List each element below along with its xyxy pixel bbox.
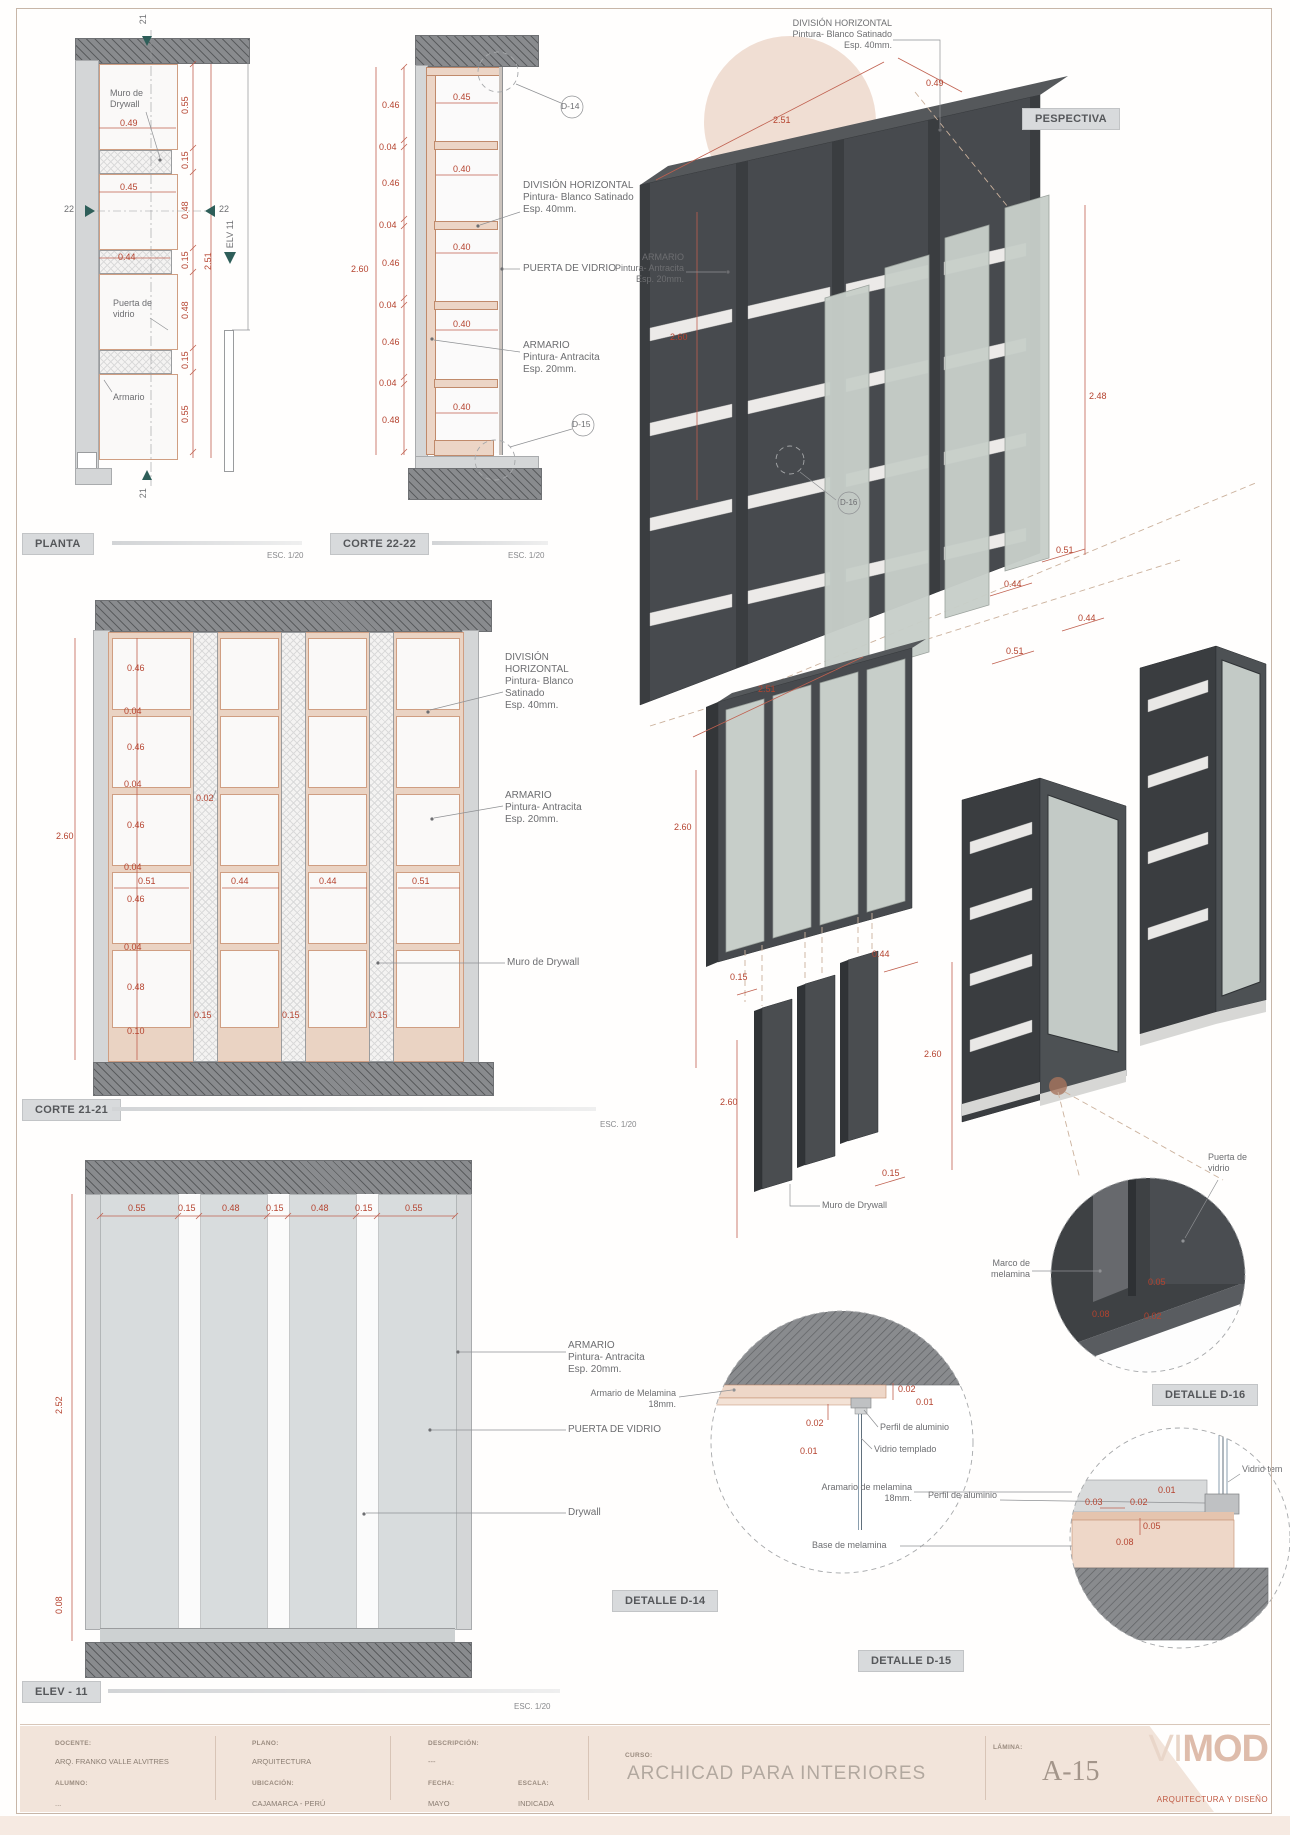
badge-corte21: CORTE 21-21 — [22, 1099, 121, 1121]
d16-dim: 0.02 — [1144, 1311, 1162, 1321]
planta-marker-22-left: 22 — [64, 204, 74, 214]
d14-dim: 0.02 — [898, 1384, 916, 1394]
tb-curso-value: ARCHICAD PARA INTERIORES — [627, 1763, 926, 1785]
c21-label-division-l1: DIVISIÓN — [505, 652, 549, 664]
c21-dim-total: 2.60 — [56, 831, 74, 841]
persp-dim-d: 0.49 — [926, 78, 944, 88]
c22-dim: 0.04 — [379, 300, 397, 310]
planta-marker-21-bottom: 21 — [138, 478, 148, 508]
logo-tagline: ARQUITECTURA Y DISEÑO — [1125, 1795, 1268, 1804]
logo-vi: VI — [1148, 1728, 1182, 1770]
c22-dim-inner: 0.40 — [453, 402, 471, 412]
tb-fecha-label: FECHA: — [428, 1780, 454, 1787]
c22-label-puerta: PUERTA DE VIDRIO — [523, 263, 616, 275]
c22-callout-d15: D-15 — [572, 420, 590, 430]
axon-dim-ph2: 2.60 — [720, 1097, 738, 1107]
scale-note: ESC. 1/20 — [514, 1702, 550, 1711]
persp-dim-door: 0.51 — [1056, 545, 1074, 555]
scale-note: ESC. 1/20 — [267, 551, 303, 560]
persp-dim-hd: 2.48 — [1089, 391, 1107, 401]
persp-dim-door: 0.44 — [1078, 613, 1096, 623]
planta-dim-v: 0.15 — [180, 145, 190, 175]
elev-dim: 0.55 — [128, 1203, 146, 1213]
scale-note: ESC. 1/20 — [600, 1120, 636, 1129]
d16-label-marco-l2: melamina — [972, 1269, 1030, 1279]
badge-line — [108, 1689, 560, 1693]
c22-dim-inner: 0.45 — [453, 92, 471, 102]
tb-plano-value: ARQUITECTURA — [252, 1757, 311, 1766]
d16-dim: 0.08 — [1092, 1309, 1110, 1319]
c22-label-armario-l1: ARMARIO — [523, 340, 570, 352]
tb-docente-value: ARQ. FRANKO VALLE ALVITRES — [55, 1757, 169, 1766]
persp-label-armario-l3: Esp. 20mm. — [608, 274, 684, 284]
c21-label-muro: Muro de Drywall — [507, 957, 579, 969]
c22-dim-inner: 0.40 — [453, 242, 471, 252]
tb-descripcion-label: DESCRIPCIÓN: — [428, 1740, 479, 1747]
elev-dim: 0.55 — [405, 1203, 423, 1213]
c21-dim: 0.46 — [127, 894, 145, 904]
elev-dim: 0.15 — [355, 1203, 373, 1213]
c21-dim-gap: 0.02 — [196, 793, 214, 803]
axon-cabinet-open-2 — [1140, 646, 1266, 1046]
detail-d16 — [1032, 1178, 1246, 1373]
d16-label-puerta-l1: Puerta de — [1208, 1152, 1247, 1162]
planta-dim-v: 0.15 — [180, 245, 190, 275]
planta-dim-v: 0.15 — [180, 345, 190, 375]
persp-label-armario-l2: Pintura- Antracita — [608, 263, 684, 273]
badge-pespectiva: PESPECTIVA — [1022, 108, 1120, 130]
axon-cabinet-open — [962, 778, 1126, 1122]
elev-dim-h: 2.52 — [54, 1390, 64, 1420]
axon-label-muro: Muro de Drywall — [822, 1200, 887, 1210]
planta-label-puerta-l2: vidrio — [113, 309, 135, 319]
persp-dim-w: 2.51 — [773, 115, 791, 125]
planta-label-puerta-l1: Puerta de — [113, 298, 152, 308]
d14-label-armario-l2: 18mm. — [576, 1399, 676, 1409]
elev-dim: 0.15 — [266, 1203, 284, 1213]
persp-dim-door: 0.44 — [1004, 579, 1022, 589]
tb-alumno-label: ALUMNO: — [55, 1780, 88, 1787]
axon-dim-pt2: 0.15 — [882, 1168, 900, 1178]
planta-label-muro-l1: Muro de — [110, 88, 143, 98]
d15-dim: 0.03 — [1085, 1497, 1103, 1507]
persp-label-division-l2: Pintura- Blanco Satinado — [768, 29, 892, 39]
persp-label-armario-l1: ARMARIO — [608, 252, 684, 262]
badge-detalle-d14: DETALLE D-14 — [612, 1590, 718, 1612]
c22-label-division-l3: Esp. 40mm. — [523, 204, 576, 216]
d15-dim: 0.08 — [1116, 1537, 1134, 1547]
elev-label-armario-l2: Pintura- Antracita — [568, 1352, 645, 1364]
c21-label-division-l2: HORIZONTAL — [505, 664, 569, 676]
c21-dim: 0.04 — [124, 779, 142, 789]
persp-callout-d16: D-16 — [840, 498, 857, 507]
corte21-linework — [75, 638, 505, 1060]
elev-label-armario-l3: Esp. 20mm. — [568, 1364, 621, 1376]
tb-ubicacion-value: CAJAMARCA - PERÚ — [252, 1799, 325, 1808]
planta-label-muro-l2: Drywall — [110, 99, 140, 109]
tb-curso-label: CURSO: — [625, 1752, 652, 1759]
c21-dim-b: 0.15 — [370, 1010, 388, 1020]
c22-dim-inner: 0.40 — [453, 319, 471, 329]
d14-dim: 0.01 — [916, 1397, 934, 1407]
drawing-sheet: Muro de Drywall 0.49 0.45 0.44 Puerta de… — [0, 0, 1290, 1835]
c21-dim: 0.48 — [127, 982, 145, 992]
badge-planta: PLANTA — [22, 533, 94, 555]
planta-dim: 0.44 — [118, 252, 136, 262]
planta-marker-21-top: 21 — [138, 4, 148, 34]
sheet-bottom-band — [0, 1816, 1290, 1835]
planta-dim-total: 2.51 — [203, 246, 213, 276]
d16-label-puerta-l2: vidrio — [1208, 1163, 1230, 1173]
c22-dim: 0.04 — [379, 378, 397, 388]
c22-label-division-l1: DIVISIÓN HORIZONTAL — [523, 180, 633, 192]
d14-dim: 0.02 — [806, 1418, 824, 1428]
c21-dim-row: 0.44 — [231, 876, 249, 886]
planta-dim-v: 0.55 — [180, 90, 190, 120]
c22-dim: 0.46 — [382, 258, 400, 268]
c21-label-armario-l1: ARMARIO — [505, 790, 552, 802]
axon-views — [693, 639, 1266, 1238]
d14-label-armario-l1: Armario de Melamina — [576, 1388, 676, 1398]
d15-dim: 0.02 — [1130, 1497, 1148, 1507]
d15-label-vidrio: Vidrio tem — [1242, 1464, 1282, 1474]
d14-dim: 0.01 — [800, 1446, 818, 1456]
scale-note: ESC. 1/20 — [508, 551, 544, 560]
logo-mod: MOD — [1182, 1728, 1268, 1770]
c22-label-division-l2: Pintura- Blanco Satinado — [523, 192, 634, 204]
persp-label-division-l1: DIVISIÓN HORIZONTAL — [768, 18, 892, 28]
badge-line — [112, 541, 302, 545]
planta-marker-22-right: 22 — [219, 204, 229, 214]
perspective-view — [640, 36, 1258, 726]
vimod-logo: VIMOD — [1125, 1730, 1268, 1768]
c21-dim: 0.04 — [124, 942, 142, 952]
c22-dim: 0.46 — [382, 178, 400, 188]
c21-label-armario-l3: Esp. 20mm. — [505, 814, 558, 826]
tb-docente-label: DOCENTE: — [55, 1740, 91, 1747]
badge-detalle-d15: DETALLE D-15 — [858, 1650, 964, 1672]
c21-label-division-l5: Esp. 40mm. — [505, 700, 558, 712]
c21-dim-row: 0.51 — [138, 876, 156, 886]
tb-escala-value: INDICADA — [518, 1799, 554, 1808]
tb-descripcion-value: --- — [428, 1757, 436, 1766]
planta-dim: 0.45 — [120, 182, 138, 192]
c21-dim: 0.04 — [124, 706, 142, 716]
c22-dim: 0.46 — [382, 337, 400, 347]
c21-dim: 0.46 — [127, 663, 145, 673]
persp-dim-door: 0.51 — [1006, 646, 1024, 656]
badge-detalle-d16: DETALLE D-16 — [1152, 1384, 1258, 1406]
d14-label-vidrio: Vidrio templado — [874, 1444, 936, 1454]
c21-label-division-l3: Pintura- Blanco — [505, 676, 573, 688]
elev-label-drywall: Drywall — [568, 1507, 601, 1519]
c22-label-armario-l3: Esp. 20mm. — [523, 364, 576, 376]
detail-d14 — [679, 1311, 973, 1573]
axon-dim-h: 2.60 — [674, 822, 692, 832]
elev-dim: 0.48 — [311, 1203, 329, 1213]
c22-label-armario-l2: Pintura- Antracita — [523, 352, 600, 364]
elev-label-puerta: PUERTA DE VIDRIO — [568, 1424, 661, 1436]
planta-marker-elv11: ELV 11 — [225, 216, 235, 252]
d15-label-armario-l1: Aramario de melamina — [790, 1482, 912, 1492]
tb-ubicacion-label: UBICACIÓN: — [252, 1780, 294, 1787]
c22-dim: 0.04 — [379, 142, 397, 152]
persp-label-division-l3: Esp. 40mm. — [768, 40, 892, 50]
planta-dim-v: 0.55 — [180, 399, 190, 429]
badge-corte22: CORTE 22-22 — [330, 533, 429, 555]
c22-dim-inner: 0.40 — [453, 164, 471, 174]
c21-dim-row: 0.51 — [412, 876, 430, 886]
tb-escala-label: ESCALA: — [518, 1780, 549, 1787]
planta-dim-v: 0.48 — [180, 295, 190, 325]
tb-fecha-value: MAYO — [428, 1799, 450, 1808]
elev-dim: 0.48 — [222, 1203, 240, 1213]
c21-dim-row: 0.44 — [319, 876, 337, 886]
c22-dim: 0.46 — [382, 100, 400, 110]
axon-dim-ph: 2.60 — [924, 1049, 942, 1059]
c22-callout-d14: D-14 — [561, 102, 579, 112]
axon-dim-pw: 0.44 — [872, 949, 890, 959]
c22-dim: 0.48 — [382, 415, 400, 425]
c21-dim-b: 0.15 — [194, 1010, 212, 1020]
elev-dim: 0.15 — [178, 1203, 196, 1213]
c22-dim: 0.04 — [379, 220, 397, 230]
d16-label-marco-l1: Marco de — [972, 1258, 1030, 1268]
c21-dim: 0.10 — [127, 1026, 145, 1036]
c22-dim-total: 2.60 — [351, 264, 369, 274]
d15-dim: 0.01 — [1158, 1485, 1176, 1495]
persp-dim-h: 2.60 — [670, 332, 688, 342]
tb-lamina-label: LÁMINA: — [993, 1744, 1023, 1751]
axon-dim-w: 2.51 — [758, 684, 776, 694]
badge-line — [432, 541, 548, 545]
d15-label-perfil: Perfil de aluminio — [928, 1490, 997, 1500]
c21-dim: 0.46 — [127, 742, 145, 752]
tb-plano-label: PLANO: — [252, 1740, 279, 1747]
badge-elev11: ELEV - 11 — [22, 1681, 101, 1703]
planta-dim: 0.49 — [120, 118, 138, 128]
c21-label-armario-l2: Pintura- Antracita — [505, 802, 582, 814]
d16-dim: 0.05 — [1148, 1277, 1166, 1287]
planta-label-armario: Armario — [113, 392, 145, 402]
d15-label-base: Base de melamina — [812, 1540, 887, 1550]
drywall-pillars — [754, 951, 878, 1192]
d15-label-armario-l2: 18mm. — [790, 1493, 912, 1503]
c21-dim: 0.46 — [127, 820, 145, 830]
c21-label-division-l4: Satinado — [505, 688, 544, 700]
d15-dim: 0.05 — [1143, 1521, 1161, 1531]
d14-label-perfil: Perfil de aluminio — [880, 1422, 949, 1432]
c21-dim: 0.04 — [124, 862, 142, 872]
tb-alumno-value: ... — [55, 1799, 61, 1808]
c21-dim-b: 0.15 — [282, 1010, 300, 1020]
axon-dim-pt: 0.15 — [730, 972, 748, 982]
tb-lamina-value: A-15 — [1042, 1756, 1100, 1788]
planta-dim-v: 0.48 — [180, 195, 190, 225]
elev-dim-base: 0.08 — [54, 1590, 64, 1620]
badge-line — [112, 1107, 596, 1111]
elev-label-armario-l1: ARMARIO — [568, 1340, 615, 1352]
elev-linework — [72, 1194, 566, 1641]
